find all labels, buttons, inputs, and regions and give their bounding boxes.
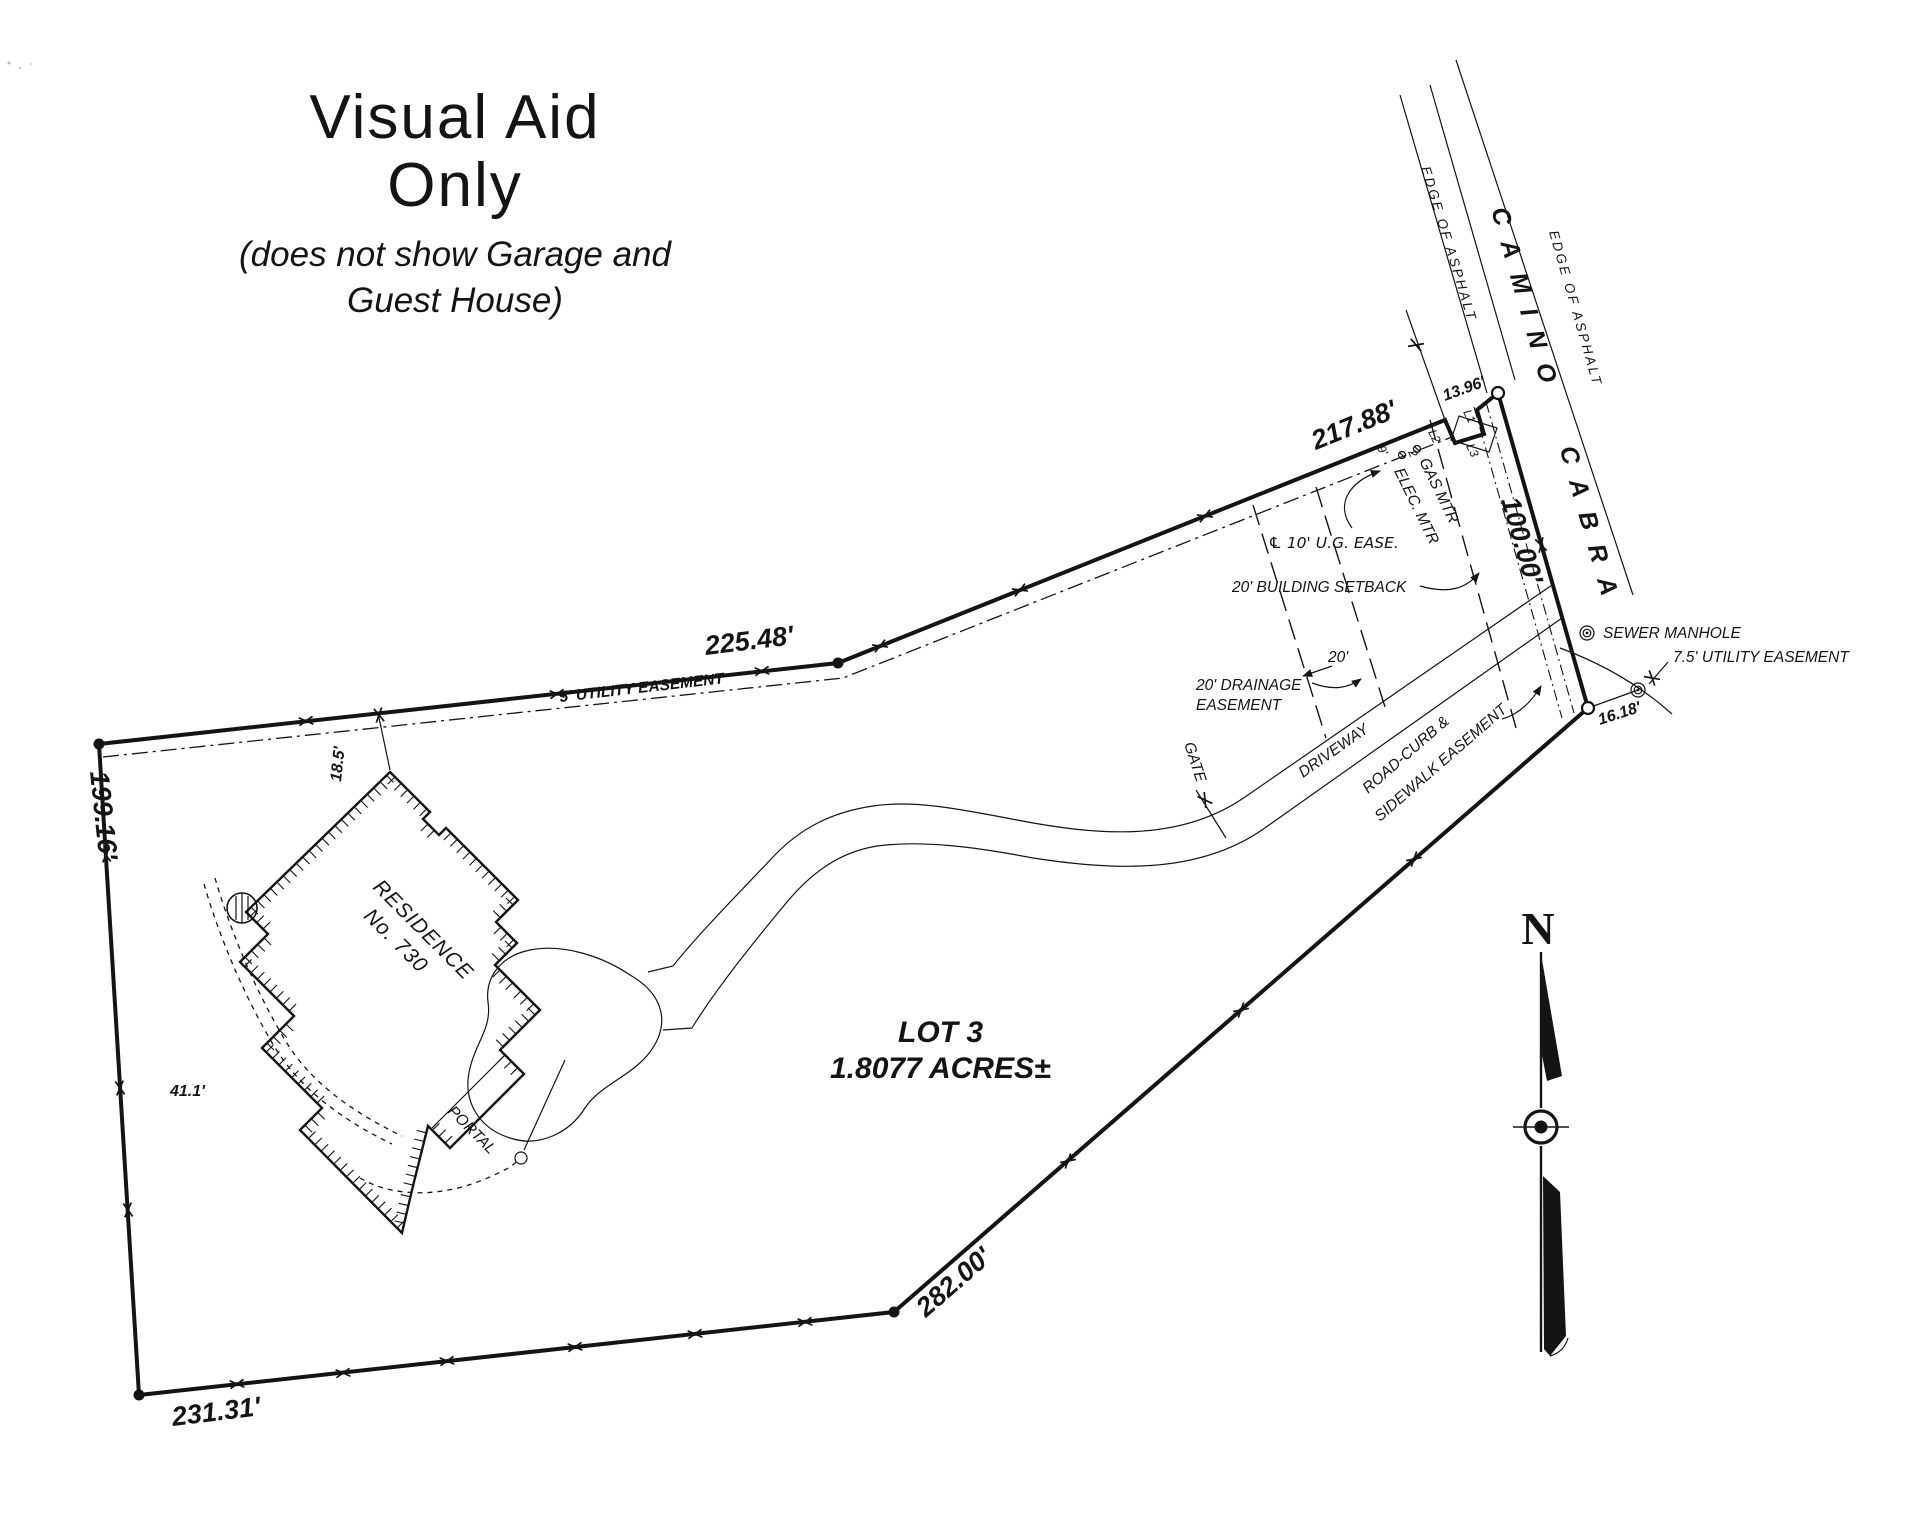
corner-monument-bend [833, 658, 844, 669]
driveway-label: DRIVEWAY [1296, 720, 1374, 781]
corner-monument-sw [134, 1390, 145, 1401]
segment-label-l2: L2 [1425, 427, 1444, 445]
dim-south: 231.31' [169, 1391, 264, 1432]
ug-easement-leader [1345, 471, 1380, 528]
drainage-width-label: 20' [1327, 649, 1349, 666]
sewer-manhole-label: SEWER MANHOLE [1603, 625, 1741, 642]
ug10-label: ℄ 10' U.G. EASE. [1268, 534, 1399, 552]
dim-2-label: 2 [1405, 446, 1421, 459]
gate-label: GATE [1180, 740, 1209, 785]
driveway [204, 585, 1562, 1193]
page-subtitle-line1: (does not show Garage and [239, 235, 672, 274]
north-tail [1543, 1176, 1566, 1356]
north-flag [1541, 954, 1562, 1081]
corner-monument-ne-open [1492, 387, 1504, 399]
driveway-edge-south [663, 618, 1562, 1030]
utility75-leader [1649, 662, 1668, 684]
drainage-label-line2: EASEMENT [1196, 697, 1283, 714]
portal-label: PORTAL [444, 1103, 499, 1158]
sewer-manhole-symbol-2 [1631, 683, 1645, 697]
segment-label-l3: L3 [1463, 441, 1482, 459]
walkway-south-line [360, 1162, 516, 1193]
dim-tie-north: 13.96' [1441, 373, 1489, 404]
corner-monument-nw [94, 739, 105, 750]
lot-area-label: 1.8077 ACRES± [830, 1052, 1051, 1085]
drainage-label-line1: 20' DRAINAGE [1195, 677, 1302, 694]
north-arrow: N [1513, 903, 1569, 1356]
site-labels: SEWER MANHOLE DRIVEWAY GATE GAS MTR ELEC… [169, 443, 1741, 1100]
dim-northwest: 225.48' [702, 620, 797, 661]
edge-of-asphalt-label-left: EDGE OF ASPHALT [1418, 164, 1480, 323]
walkway-hook [515, 1152, 527, 1164]
house-tie-label: 18.5' [328, 745, 349, 783]
wing-dim-label: 41.1' [169, 1083, 206, 1100]
dim-west: 199.16' [84, 769, 123, 862]
residence-label: RESIDENCE No. 730 [349, 875, 477, 1003]
corner-extension-line [1406, 310, 1445, 420]
utility-easement-arc [1560, 648, 1672, 714]
drainage-width-arrow [1303, 666, 1332, 676]
lot-labels: LOT 3 1.8077 ACRES± [830, 1016, 1051, 1085]
easement-lines [103, 402, 1672, 757]
walkway-tie-line [524, 1060, 565, 1150]
dim-tie-south: 16.18' [1596, 699, 1644, 729]
setback-leader [1420, 573, 1479, 590]
title-block: Visual Aid Only (does not show Garage an… [239, 83, 672, 320]
lot-name-label: LOT 3 [898, 1016, 983, 1049]
plat-page: Visual Aid Only (does not show Garage an… [0, 0, 1910, 1536]
residence: RESIDENCE No. 730 PORTAL [227, 772, 540, 1233]
page-subtitle-line2: Guest House) [347, 281, 563, 320]
house-tie-line [378, 713, 390, 770]
utility75-label: 7.5' UTILITY EASEMENT [1673, 649, 1850, 666]
page-title-line2: Only [387, 151, 522, 220]
drainage-easement-line-east [1316, 487, 1385, 707]
scan-specks [8, 62, 33, 70]
generated-tick-marks [101, 339, 1660, 1389]
dim-southeast: 282.00' [909, 1240, 998, 1323]
parking-court-outline [468, 948, 662, 1141]
sewer-manhole-symbol-1 [1580, 626, 1594, 640]
building-setback-line [1430, 420, 1516, 728]
page-title-line1: Visual Aid [309, 83, 600, 152]
survey-plat-drawing: Visual Aid Only (does not show Garage an… [0, 0, 1910, 1536]
setback-label: 20' BUILDING SETBACK [1231, 579, 1407, 596]
dimension-labels: 217.88' 225.48' 199.16' 231.31' 282.00' … [84, 373, 1644, 1432]
corner-monument-e-open [1582, 702, 1594, 714]
north-letter: N [1521, 903, 1554, 954]
corner-monument-s [889, 1307, 900, 1318]
utility5-label: 5' UTILITY EASEMENT [559, 670, 727, 706]
drainage-leader [1312, 679, 1361, 688]
